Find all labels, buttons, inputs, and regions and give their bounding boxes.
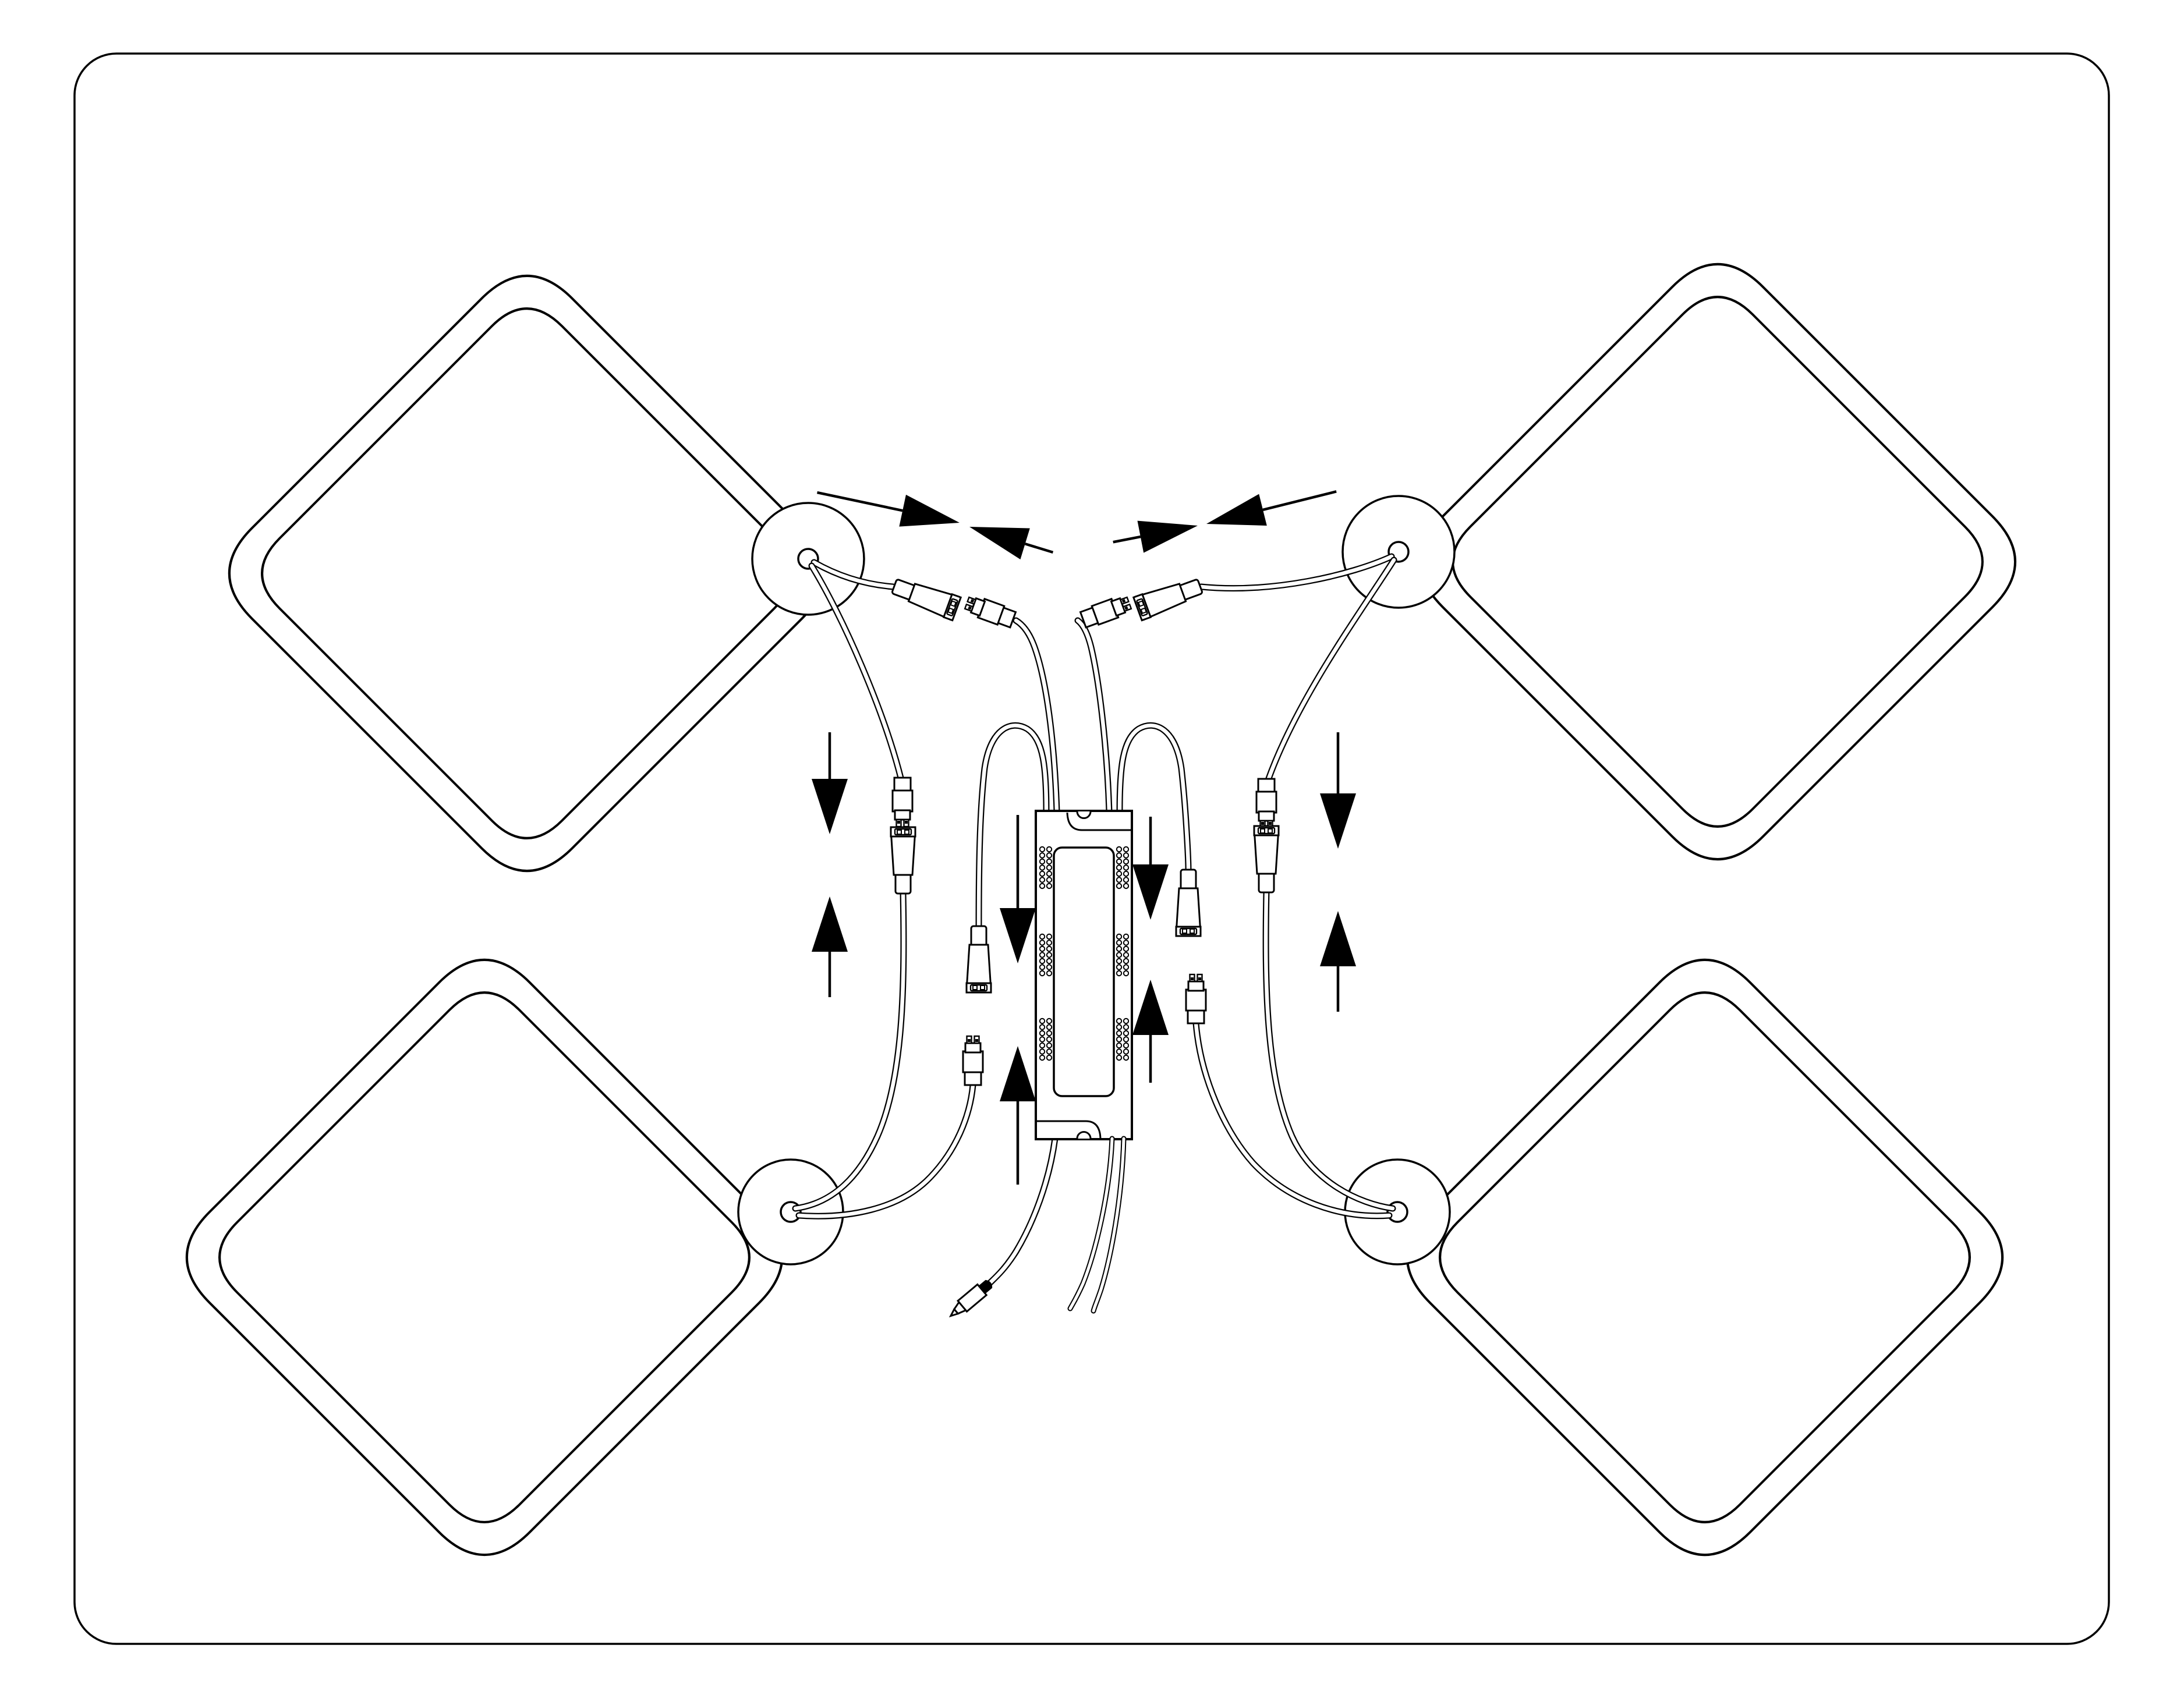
arrow-head [1132,864,1169,920]
top-middle-left-male-connector [964,594,1017,629]
arrow-head [1132,980,1169,1035]
arrow-inner-right-down [1132,817,1169,920]
loop-top-left-inner-tube [262,309,792,838]
cable-box-bottom-to-power-plug [989,1139,1055,1284]
loop-top-left [229,276,824,871]
cable-outer-left-female-to-hub-bottom-left [795,893,904,1208]
arrow-head [1206,494,1267,526]
top-middle-right-female-connector [1134,575,1204,620]
cable-core [989,1139,1055,1284]
arrow-head [1137,521,1198,553]
outer-right-male-connector [1256,779,1276,828]
loop-bottom-left-inner-tube [220,992,749,1522]
arrow-head [812,896,848,952]
arrow-top-right-inward [1206,491,1336,526]
inner-left-male-connector [963,1036,983,1085]
inner-left-female-connector [967,926,991,992]
cable-outline [1268,560,1394,780]
arrow-head [1320,911,1356,966]
loop-top-left-outer-tube [229,276,824,871]
arrow-outer-left-down [812,732,848,834]
arrow-tail [1263,491,1336,509]
amplifier-window [1054,848,1114,1096]
arrow-tail [1113,537,1141,542]
arrow-outer-right-down [1320,732,1356,849]
amplifier-box [1036,811,1132,1139]
hub-top-left [752,503,864,615]
wire-core [1070,1139,1112,1309]
arrow-head [969,527,1030,559]
power-leads-layer [946,1139,1124,1321]
arrow-inner-right-up [1132,980,1169,1083]
outer-left-male-connector [893,778,912,827]
inner-right-male-connector [1186,974,1206,1023]
cable-box-top-left-to-top-middle-left-male [1016,621,1057,811]
power-plug [946,1278,994,1321]
pigtail-wire-1 [1070,1139,1112,1309]
arrow-head [1000,1046,1036,1101]
arrow-head [812,779,848,834]
wire-outline [1070,1139,1112,1309]
screw-notch-bottom [1077,1132,1091,1139]
arrow-tail [1025,544,1053,552]
loop-top-right-inner-tube [1453,297,1983,827]
arrow-head [1000,908,1036,963]
arrow-inner-left-down [1000,815,1036,963]
cable-hub-top-right-to-outer-right-male [1268,560,1394,780]
arrow-top-left-outward [969,527,1053,559]
arrow-inner-left-up [1000,1046,1036,1185]
loop-bottom-left [187,960,782,1555]
loop-bottom-right-inner-tube [1440,992,1970,1522]
cable-core [795,893,904,1208]
screw-notch-top [1077,811,1091,818]
cable-outline [989,1139,1055,1284]
arrow-outer-left-up [812,896,848,997]
top-middle-right-male-connector [1080,594,1133,629]
inner-right-female-connector [1176,870,1201,936]
loop-top-right [1420,264,2015,859]
outer-right-female-connector [1254,826,1279,892]
loop-bottom-left-outer-tube [187,960,782,1555]
loop-top-right-outer-tube [1420,264,2015,859]
amplifier-box-layer [1036,811,1132,1139]
cable-box-top-right-to-top-middle-right-male [1078,621,1109,811]
cable-outline [795,893,904,1208]
antenna-assembly-diagram: Assembly diagram of a four-loop antenna … [0,0,2184,1698]
hub-top-right [1343,496,1454,608]
arrow-head [1320,793,1356,849]
arrow-outer-right-up [1320,911,1356,1012]
arrow-top-right-outward [1113,521,1198,553]
outer-left-female-connector [891,827,915,894]
loop-bottom-right-outer-tube [1407,960,2002,1555]
cable-core [1016,621,1057,811]
arrow-head [899,495,960,527]
top-middle-left-female-connector [890,575,961,620]
loop-bottom-right [1407,960,2002,1555]
hub-bottom-left [738,1160,843,1264]
manual-page: Assembly diagram of a four-loop antenna … [0,0,2184,1698]
